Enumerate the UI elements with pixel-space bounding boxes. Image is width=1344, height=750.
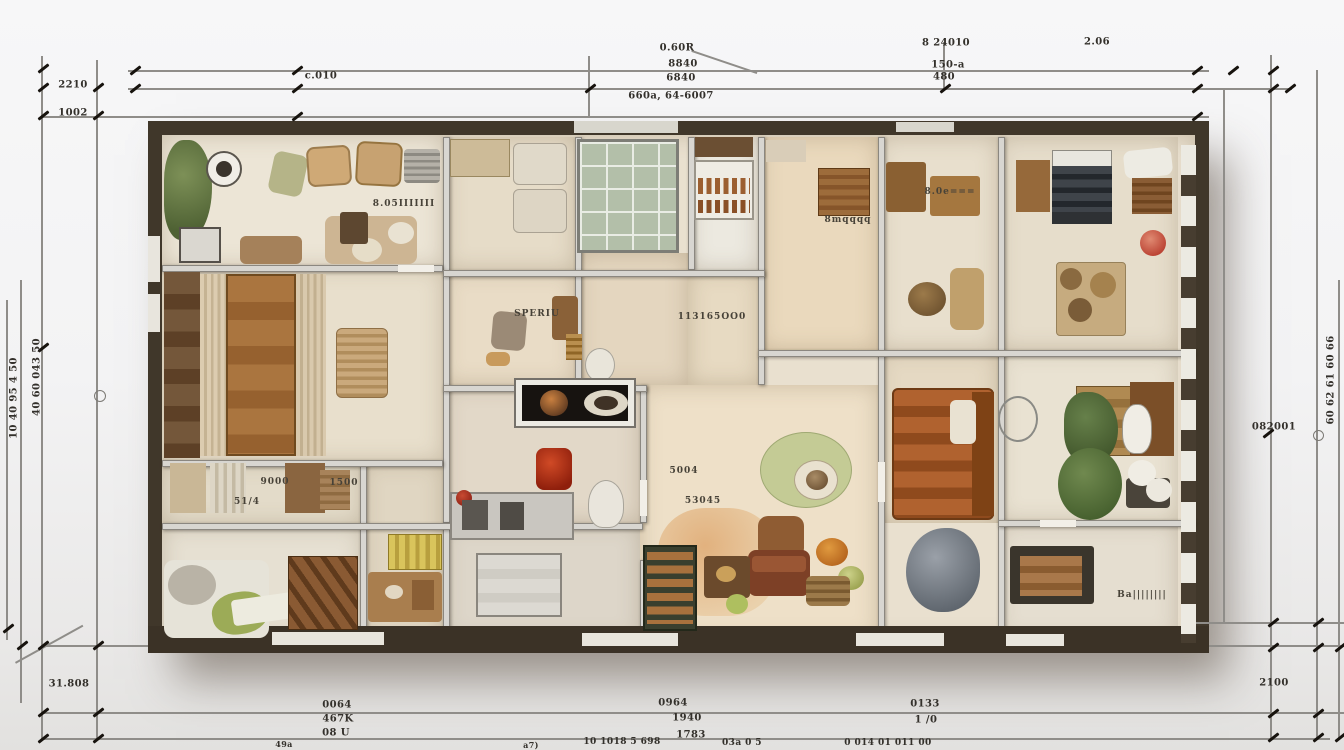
top-window-1: [574, 121, 678, 133]
dimension-label: 082001: [1252, 422, 1296, 433]
bed-curtain-left: [200, 274, 226, 456]
fruit-bowl-orange: [816, 538, 848, 566]
top-window-2: [896, 122, 954, 132]
balcony-railing: [1181, 145, 1196, 643]
door-gap-2: [878, 462, 885, 502]
stove-2: [500, 502, 524, 530]
bookshelf-books-2: [698, 200, 750, 213]
log-shelf-logs: [647, 552, 693, 624]
dimension-label: 6840: [666, 73, 695, 84]
dimension-label: 03a 0 5: [722, 738, 762, 748]
dimension-label: 60 62 61 60 66: [1326, 335, 1337, 424]
room-label: SPERIU: [514, 309, 560, 319]
island-plate-2-food: [594, 396, 618, 410]
wall-h6: [998, 520, 1195, 527]
table-right-bowl-2: [1090, 272, 1116, 298]
dimension-line: [1271, 55, 1273, 738]
mat-brown-right: [1132, 178, 1172, 214]
dimension-label: 467K: [322, 714, 353, 725]
stove-1: [462, 500, 488, 530]
beanbag-gray: [906, 528, 980, 612]
pillow-gray: [168, 565, 216, 605]
wall-v7: [360, 462, 367, 640]
dimension-circle-mark: [94, 390, 106, 402]
dimension-label: 49a: [275, 739, 293, 749]
dimension-tick: [37, 63, 49, 73]
staircase: [288, 556, 358, 630]
ottoman-hall: [486, 352, 510, 366]
room-label: 9000: [260, 477, 289, 487]
closet-box-1: [170, 463, 206, 513]
dimension-tick: [1227, 65, 1239, 75]
dimension-label: 1 /0: [915, 715, 938, 726]
shelf-tiledroom: [766, 140, 806, 162]
wall-v5: [878, 137, 885, 640]
basket-midroom: [908, 282, 946, 316]
table-right-bowl-1: [1060, 268, 1082, 290]
fruit-basket: [806, 576, 850, 606]
wall-v4: [758, 137, 765, 385]
dimension-label: 480: [933, 72, 955, 83]
dimension-tick: [1267, 642, 1279, 652]
dimension-line: [1224, 88, 1226, 622]
wall-v6: [998, 137, 1005, 640]
dimension-label: 2100: [1259, 678, 1288, 689]
dimension-line: [43, 116, 1209, 118]
dimension-label: 0.60R: [660, 43, 695, 54]
dimension-tick: [1267, 708, 1279, 718]
bottom-window-4: [1006, 634, 1064, 646]
dimension-label: 40 60 043 50: [32, 338, 43, 416]
dimension-label: 0064: [322, 700, 351, 711]
red-pot: [536, 448, 572, 490]
dimension-label: 31.808: [49, 679, 90, 690]
safe-box: [179, 227, 221, 263]
bookshelf-books-1: [698, 178, 750, 194]
seat-midroom: [950, 268, 984, 330]
dark-box-shelfroom: [695, 137, 753, 157]
door-gap-3: [640, 480, 647, 516]
dimension-label: 1940: [672, 713, 701, 724]
white-chair-1: [513, 143, 567, 185]
dimension-line: [7, 300, 9, 640]
room-label: 113165OO0: [678, 312, 747, 322]
wall-h7: [443, 270, 765, 277]
dimension-tick: [1284, 83, 1296, 93]
dimension-label: 08 U: [322, 728, 350, 739]
left-window-1: [148, 236, 160, 282]
room-label: 51/4: [234, 497, 260, 507]
dimension-label: 0133: [910, 699, 939, 710]
dimension-label: 2210: [58, 80, 87, 91]
dimension-line: [1339, 280, 1341, 740]
dresser-midroom-1: [886, 162, 926, 212]
door-gap-1: [398, 265, 434, 272]
toilet: [1122, 404, 1152, 454]
desk-item-2: [412, 580, 434, 610]
dimension-label: c.010: [305, 71, 337, 82]
wall-h2: [758, 350, 1195, 357]
armchair-tan-2: [355, 141, 403, 187]
closet-box-2: [285, 463, 325, 513]
dimension-label: 1002: [58, 108, 87, 119]
storage-shelf: [450, 139, 510, 177]
bed-wood-panels: [226, 274, 296, 456]
dresser-dark: [340, 212, 368, 244]
wardrobe-left: [164, 272, 200, 458]
bottom-window-3: [856, 633, 944, 646]
dimension-circle-mark: [1313, 430, 1324, 441]
dimension-tick: [16, 640, 28, 650]
left-window-2: [148, 294, 160, 332]
dimension-label: 150-a: [931, 60, 965, 71]
room-corridor: [688, 270, 760, 385]
dimension-tick: [2, 623, 14, 633]
wall-v1: [443, 137, 450, 523]
dimension-label: 10 1018 5 698: [583, 737, 660, 747]
bath-plant-2: [1058, 448, 1122, 520]
dimension-label: 10 40 95 4 50: [9, 357, 20, 439]
fridge: [476, 553, 562, 617]
door-gap-4: [1040, 520, 1076, 527]
room-label: 8.05IIIIIII: [373, 199, 435, 209]
tv-console-wood: [1020, 556, 1082, 596]
oval-mirror: [998, 396, 1038, 442]
island-plate-1: [540, 390, 568, 416]
dimension-label: 0 014 01 011 00: [844, 738, 931, 748]
wall-v8: [443, 523, 450, 640]
dimension-tick: [1312, 642, 1324, 652]
bottom-window-2: [582, 633, 678, 646]
blueprint-canvas: 22101002c.0100.60R88406840660a, 64-60078…: [0, 0, 1344, 750]
room-label: 8mqqqq: [825, 215, 872, 225]
bed-right-footboard: [1052, 212, 1112, 224]
round-table-center: [216, 161, 232, 177]
dimension-label: 2.06: [1084, 37, 1110, 48]
bottom-window-1: [272, 632, 384, 645]
white-chair-2: [513, 189, 567, 233]
floor-lamp: [585, 348, 615, 382]
dimension-tick: [92, 82, 104, 92]
skylight-grid-window: [577, 139, 679, 253]
woven-mat: [336, 328, 388, 398]
dimension-line: [128, 88, 1292, 90]
dimension-label: 1783: [676, 730, 705, 741]
dimension-tick: [1267, 65, 1279, 75]
dimension-label: 660a, 64-6007: [628, 91, 713, 102]
room-label: 8.0e===: [924, 187, 975, 197]
wicker-basket-hall: [566, 334, 582, 360]
daybed-pillow-1: [388, 222, 414, 244]
dimension-line: [21, 280, 23, 703]
dimension-line: [128, 70, 1209, 72]
room-label: 5004: [669, 466, 698, 476]
dimension-label: 0964: [658, 698, 687, 709]
flower-bowl: [1140, 230, 1166, 256]
room-label: 53045: [685, 496, 721, 506]
dimension-label: 8 24010: [922, 38, 970, 49]
bed-right-blanket: [1052, 166, 1112, 212]
bed-orange-pillow: [950, 400, 976, 444]
room-label: Ba||||||||: [1117, 590, 1167, 600]
rug-hat-center: [806, 470, 828, 490]
kettle: [588, 480, 624, 528]
room-label: 1500: [329, 478, 358, 488]
dimension-label: a7): [523, 740, 539, 750]
nightstand-right: [1016, 160, 1050, 212]
closet-basket: [320, 470, 350, 510]
cabinet-tiledroom: [818, 168, 870, 216]
dimension-tick: [1312, 708, 1324, 718]
pillow-white-right: [1123, 147, 1174, 180]
green-apple: [726, 594, 748, 614]
bath-towel-2: [1146, 478, 1172, 502]
coffee-table-bowl: [716, 566, 736, 582]
table-right-bowl-3: [1068, 298, 1092, 322]
bed-curtain-right: [296, 274, 326, 456]
dimension-tick: [37, 82, 49, 92]
dimension-label: 8840: [668, 59, 697, 70]
sofa-red-cushions: [752, 556, 806, 572]
armchair-tan-1: [306, 145, 353, 188]
sofa-small: [240, 236, 302, 264]
yellow-cabinet: [388, 534, 442, 570]
radiator: [404, 149, 440, 183]
desk-item-1: [385, 585, 403, 599]
dimension-line: [1317, 70, 1319, 738]
